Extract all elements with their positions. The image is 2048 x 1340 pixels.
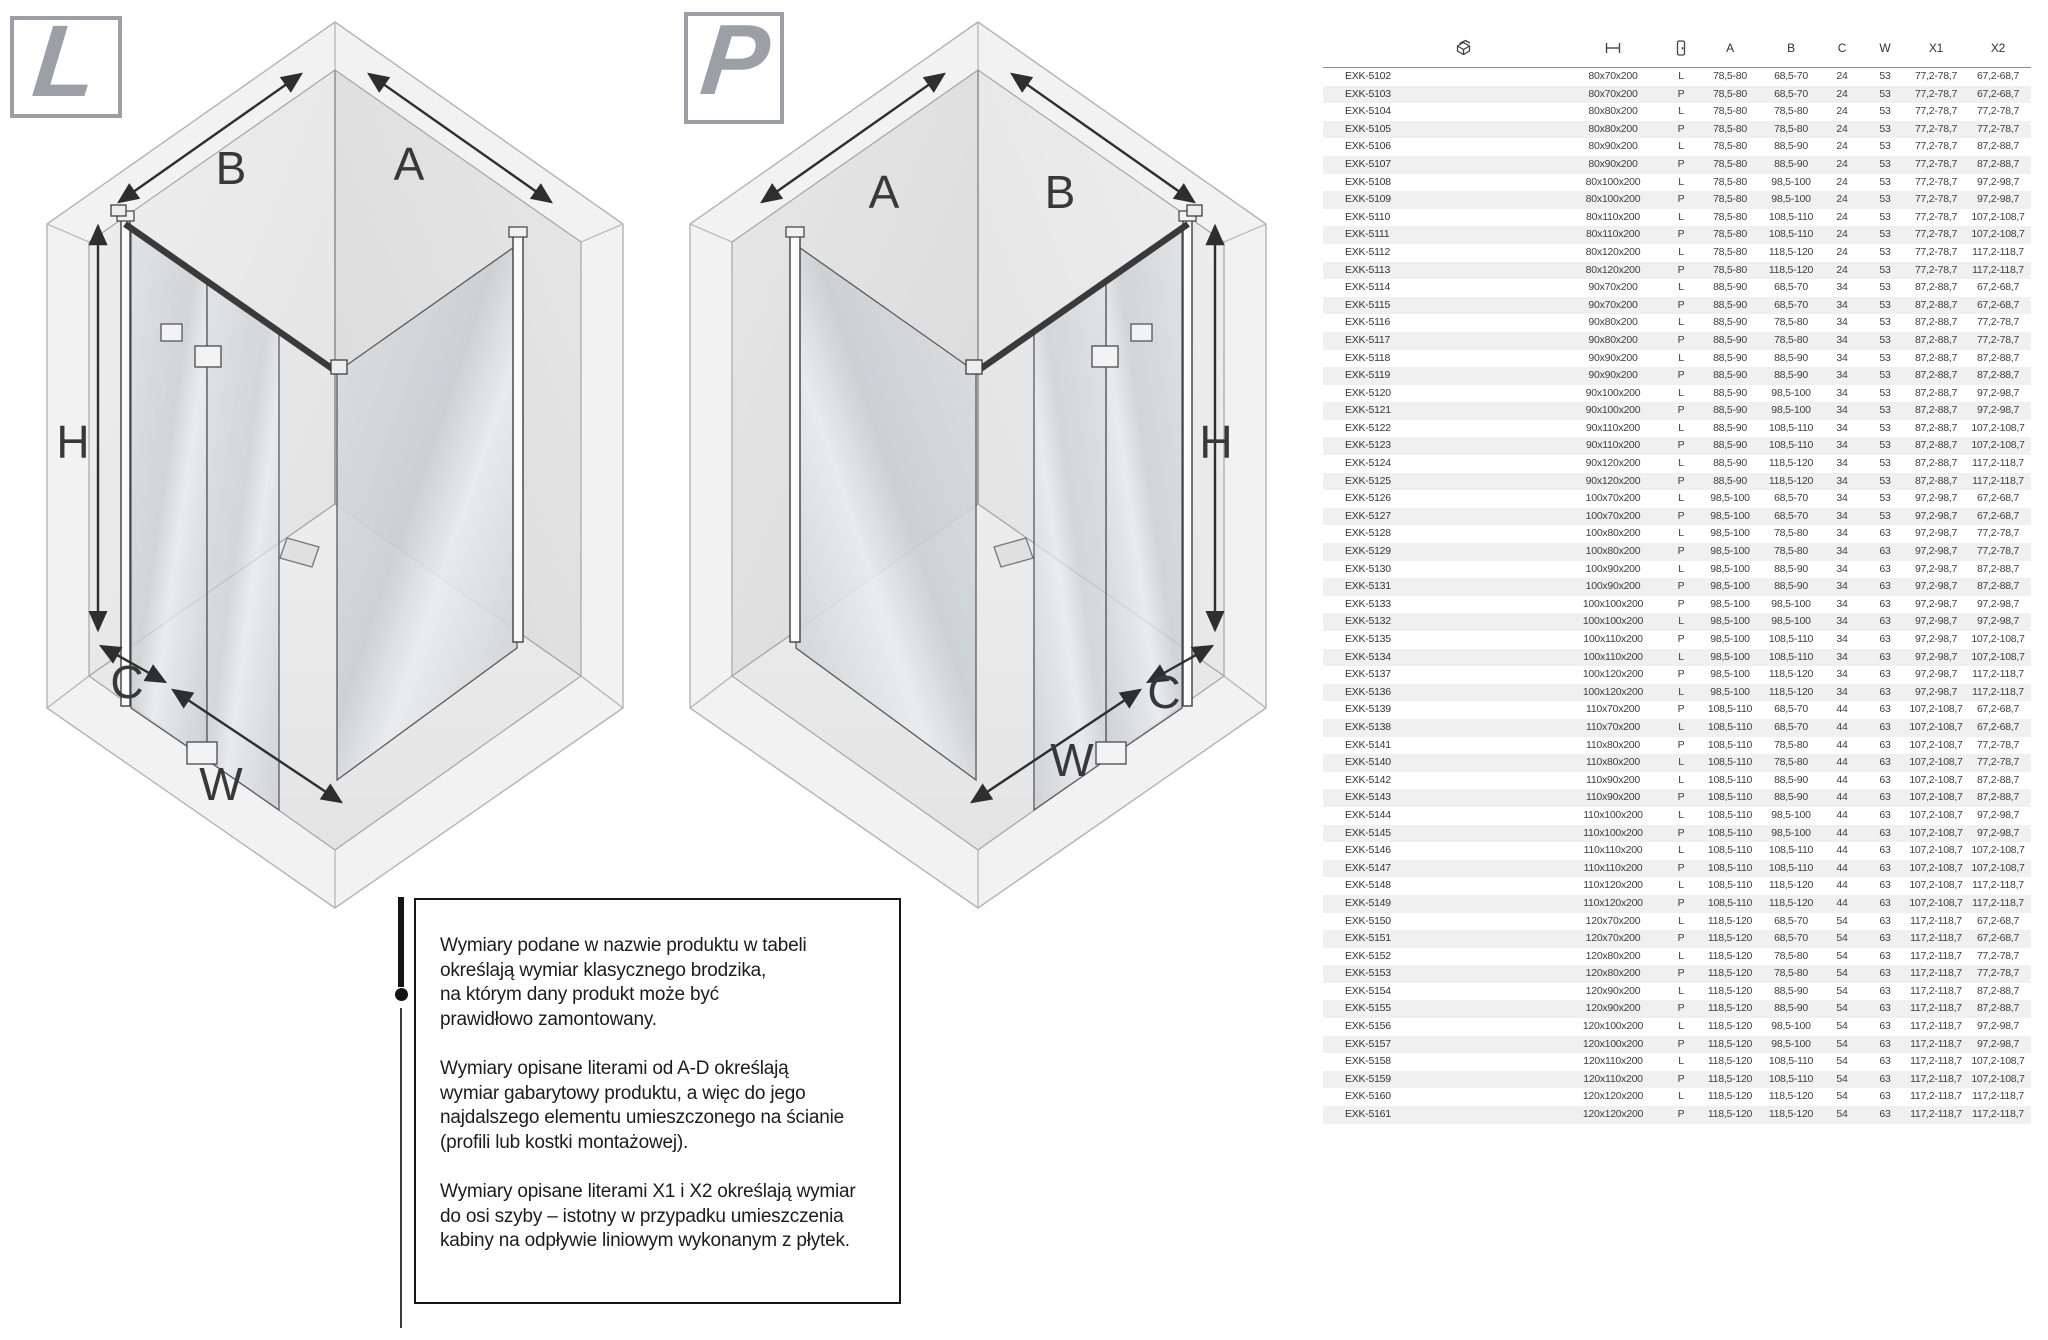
door-side-cell: P <box>1663 86 1699 104</box>
dim-c-cell: 34 <box>1821 297 1863 315</box>
dim-w-cell: 63 <box>1863 561 1907 579</box>
product-code-cell: EXK-5139 <box>1323 701 1563 719</box>
dim-x1-cell: 87,2-88,7 <box>1907 473 1965 491</box>
dim-x2-cell: 107,2-108,7 <box>1965 649 2031 667</box>
col-header-X2: X2 <box>1965 41 2031 55</box>
product-code-cell: EXK-5150 <box>1323 913 1563 931</box>
table-row: EXK-5135 100x110x200 P 98,5-100 108,5-11… <box>1323 631 2031 649</box>
dim-w-cell: 63 <box>1863 1088 1907 1106</box>
table-row: EXK-5160 120x120x200 L 118,5-120 118,5-1… <box>1323 1088 2031 1106</box>
dim-a-cell: 108,5-110 <box>1699 789 1761 807</box>
size-cell: 120x120x200 <box>1563 1088 1663 1106</box>
dim-x1-cell: 77,2-78,7 <box>1907 86 1965 104</box>
dim-x1-cell: 77,2-78,7 <box>1907 68 1965 86</box>
dim-x1-cell: 97,2-98,7 <box>1907 525 1965 543</box>
table-row: EXK-5132 100x100x200 L 98,5-100 98,5-100… <box>1323 613 2031 631</box>
dim-w-cell: 53 <box>1863 490 1907 508</box>
dim-x2-cell: 77,2-78,7 <box>1965 737 2031 755</box>
dim-x2-cell: 117,2-118,7 <box>1965 262 2031 280</box>
product-code-cell: EXK-5114 <box>1323 279 1563 297</box>
note-paragraph-2: Wymiary opisane literami od A-D określaj… <box>440 1057 873 1155</box>
dim-c-cell: 34 <box>1821 314 1863 332</box>
product-code-cell: EXK-5120 <box>1323 385 1563 403</box>
table-row: EXK-5116 90x80x200 L 88,5-90 78,5-80 34 … <box>1323 314 2031 332</box>
size-cell: 90x100x200 <box>1563 402 1663 420</box>
dim-a-cell: 78,5-80 <box>1699 68 1761 86</box>
table-row: EXK-5145 110x100x200 P 108,5-110 98,5-10… <box>1323 825 2031 843</box>
door-side-cell: P <box>1663 825 1699 843</box>
size-cell: 80x80x200 <box>1563 103 1663 121</box>
dim-label-H: H <box>56 416 89 468</box>
dim-x2-cell: 97,2-98,7 <box>1965 1036 2031 1054</box>
table-row: EXK-5117 90x80x200 P 88,5-90 78,5-80 34 … <box>1323 332 2031 350</box>
dim-c-cell: 34 <box>1821 525 1863 543</box>
dim-x1-cell: 87,2-88,7 <box>1907 402 1965 420</box>
dim-b-cell: 98,5-100 <box>1761 1018 1821 1036</box>
dim-x2-cell: 117,2-118,7 <box>1965 895 2031 913</box>
product-code-cell: EXK-5152 <box>1323 948 1563 966</box>
dim-b-cell: 68,5-70 <box>1761 490 1821 508</box>
table-row: EXK-5105 80x80x200 P 78,5-80 78,5-80 24 … <box>1323 121 2031 139</box>
dim-b-cell: 108,5-110 <box>1761 649 1821 667</box>
dim-c-cell: 54 <box>1821 983 1863 1001</box>
door-side-cell: P <box>1663 437 1699 455</box>
dim-x2-cell: 107,2-108,7 <box>1965 1053 2031 1071</box>
dim-x1-cell: 97,2-98,7 <box>1907 631 1965 649</box>
door-side-cell: L <box>1663 314 1699 332</box>
size-cell: 100x70x200 <box>1563 490 1663 508</box>
size-cell: 100x90x200 <box>1563 578 1663 596</box>
product-code-cell: EXK-5124 <box>1323 455 1563 473</box>
dim-x1-cell: 87,2-88,7 <box>1907 314 1965 332</box>
dim-x2-cell: 117,2-118,7 <box>1965 473 2031 491</box>
dim-x2-cell: 107,2-108,7 <box>1965 1071 2031 1089</box>
dim-w-cell: 63 <box>1863 1036 1907 1054</box>
dim-c-cell: 44 <box>1821 719 1863 737</box>
dim-a-cell: 78,5-80 <box>1699 86 1761 104</box>
dim-b-cell: 88,5-90 <box>1761 561 1821 579</box>
dim-x1-cell: 77,2-78,7 <box>1907 244 1965 262</box>
dim-x1-cell: 77,2-78,7 <box>1907 138 1965 156</box>
dim-c-cell: 34 <box>1821 543 1863 561</box>
table-row: EXK-5107 80x90x200 P 78,5-80 88,5-90 24 … <box>1323 156 2031 174</box>
size-cell: 90x110x200 <box>1563 420 1663 438</box>
dim-b-cell: 78,5-80 <box>1761 525 1821 543</box>
dim-b-cell: 88,5-90 <box>1761 1000 1821 1018</box>
dim-w-cell: 53 <box>1863 314 1907 332</box>
product-code-cell: EXK-5125 <box>1323 473 1563 491</box>
dimension-note-box: Wymiary podane w nazwie produktu w tabel… <box>414 898 901 1304</box>
size-cell: 120x90x200 <box>1563 1000 1663 1018</box>
dim-w-cell: 53 <box>1863 103 1907 121</box>
dim-a-cell: 118,5-120 <box>1699 1088 1761 1106</box>
door-side-cell: P <box>1663 156 1699 174</box>
size-cell: 120x80x200 <box>1563 948 1663 966</box>
door-side-cell: L <box>1663 913 1699 931</box>
table-row: EXK-5121 90x100x200 P 88,5-90 98,5-100 3… <box>1323 402 2031 420</box>
dim-x2-cell: 87,2-88,7 <box>1965 367 2031 385</box>
dim-x1-cell: 87,2-88,7 <box>1907 367 1965 385</box>
size-cell: 80x110x200 <box>1563 209 1663 227</box>
table-row: EXK-5133 100x100x200 P 98,5-100 98,5-100… <box>1323 596 2031 614</box>
dim-x1-cell: 107,2-108,7 <box>1907 754 1965 772</box>
product-code-cell: EXK-5153 <box>1323 965 1563 983</box>
size-cell: 110x80x200 <box>1563 754 1663 772</box>
dim-a-cell: 98,5-100 <box>1699 525 1761 543</box>
product-code-cell: EXK-5130 <box>1323 561 1563 579</box>
dim-b-cell: 98,5-100 <box>1761 596 1821 614</box>
door-side-cell: L <box>1663 68 1699 86</box>
dim-w-cell: 63 <box>1863 1106 1907 1124</box>
dim-x2-cell: 77,2-78,7 <box>1965 314 2031 332</box>
table-row: EXK-5113 80x120x200 P 78,5-80 118,5-120 … <box>1323 262 2031 280</box>
dim-label-A: A <box>394 138 425 190</box>
door-side-cell: P <box>1663 701 1699 719</box>
dim-a-cell: 78,5-80 <box>1699 209 1761 227</box>
product-code-cell: EXK-5119 <box>1323 367 1563 385</box>
dim-c-cell: 34 <box>1821 332 1863 350</box>
product-code-cell: EXK-5106 <box>1323 138 1563 156</box>
dim-a-cell: 108,5-110 <box>1699 772 1761 790</box>
table-row: EXK-5154 120x90x200 L 118,5-120 88,5-90 … <box>1323 983 2031 1001</box>
dim-x2-cell: 77,2-78,7 <box>1965 543 2031 561</box>
dim-b-cell: 108,5-110 <box>1761 209 1821 227</box>
dim-b-cell: 98,5-100 <box>1761 825 1821 843</box>
size-cell: 90x100x200 <box>1563 385 1663 403</box>
dim-b-cell: 118,5-120 <box>1761 666 1821 684</box>
dim-w-cell: 63 <box>1863 1053 1907 1071</box>
table-row: EXK-5144 110x100x200 L 108,5-110 98,5-10… <box>1323 807 2031 825</box>
product-code-cell: EXK-5103 <box>1323 86 1563 104</box>
dim-w-cell: 63 <box>1863 737 1907 755</box>
dim-x1-cell: 117,2-118,7 <box>1907 1071 1965 1089</box>
dim-a-cell: 118,5-120 <box>1699 1053 1761 1071</box>
dim-x1-cell: 77,2-78,7 <box>1907 121 1965 139</box>
dim-b-cell: 78,5-80 <box>1761 965 1821 983</box>
badge-letter-L: L <box>29 10 102 112</box>
size-cell: 110x110x200 <box>1563 860 1663 878</box>
product-code-cell: EXK-5109 <box>1323 191 1563 209</box>
dim-w-cell: 63 <box>1863 613 1907 631</box>
dim-b-cell: 88,5-90 <box>1761 789 1821 807</box>
dim-w-cell: 63 <box>1863 1000 1907 1018</box>
dim-c-cell: 34 <box>1821 631 1863 649</box>
product-code-cell: EXK-5137 <box>1323 666 1563 684</box>
dim-a-cell: 108,5-110 <box>1699 825 1761 843</box>
dim-label-C: C <box>1147 666 1180 718</box>
door-side-cell: P <box>1663 596 1699 614</box>
dim-x2-cell: 107,2-108,7 <box>1965 631 2031 649</box>
dim-c-cell: 24 <box>1821 244 1863 262</box>
door-side-cell: P <box>1663 473 1699 491</box>
dim-x1-cell: 87,2-88,7 <box>1907 332 1965 350</box>
dim-c-cell: 24 <box>1821 174 1863 192</box>
note-paragraph-3: Wymiary opisane literami X1 i X2 określa… <box>440 1180 873 1254</box>
dim-c-cell: 54 <box>1821 1018 1863 1036</box>
size-cell: 90x110x200 <box>1563 437 1663 455</box>
dim-a-cell: 108,5-110 <box>1699 701 1761 719</box>
product-code-cell: EXK-5131 <box>1323 578 1563 596</box>
dim-x1-cell: 97,2-98,7 <box>1907 596 1965 614</box>
dim-w-cell: 53 <box>1863 385 1907 403</box>
dim-a-cell: 118,5-120 <box>1699 965 1761 983</box>
dim-b-cell: 98,5-100 <box>1761 385 1821 403</box>
dim-label-W: W <box>199 758 243 810</box>
dim-x2-cell: 107,2-108,7 <box>1965 226 2031 244</box>
size-cell: 80x100x200 <box>1563 191 1663 209</box>
dim-c-cell: 34 <box>1821 596 1863 614</box>
dim-a-cell: 88,5-90 <box>1699 437 1761 455</box>
product-code-cell: EXK-5154 <box>1323 983 1563 1001</box>
dim-x2-cell: 87,2-88,7 <box>1965 1000 2031 1018</box>
dim-c-cell: 54 <box>1821 1071 1863 1089</box>
dim-x2-cell: 77,2-78,7 <box>1965 121 2031 139</box>
dim-x2-cell: 117,2-118,7 <box>1965 684 2031 702</box>
dim-a-cell: 118,5-120 <box>1699 1071 1761 1089</box>
size-cell: 110x70x200 <box>1563 701 1663 719</box>
dim-a-cell: 108,5-110 <box>1699 877 1761 895</box>
dim-x1-cell: 87,2-88,7 <box>1907 297 1965 315</box>
dim-x1-cell: 117,2-118,7 <box>1907 1106 1965 1124</box>
dim-x1-cell: 107,2-108,7 <box>1907 737 1965 755</box>
dim-label-B: B <box>1045 166 1076 218</box>
dim-x2-cell: 67,2-68,7 <box>1965 701 2031 719</box>
table-row: EXK-5110 80x110x200 L 78,5-80 108,5-110 … <box>1323 209 2031 227</box>
door-side-cell: P <box>1663 402 1699 420</box>
dim-c-cell: 44 <box>1821 772 1863 790</box>
dim-c-cell: 54 <box>1821 1088 1863 1106</box>
dim-a-cell: 108,5-110 <box>1699 842 1761 860</box>
dim-c-cell: 34 <box>1821 437 1863 455</box>
dim-w-cell: 63 <box>1863 983 1907 1001</box>
product-code-cell: EXK-5110 <box>1323 209 1563 227</box>
dim-b-cell: 108,5-110 <box>1761 631 1821 649</box>
dim-x2-cell: 107,2-108,7 <box>1965 437 2031 455</box>
dim-x1-cell: 117,2-118,7 <box>1907 983 1965 1001</box>
size-cell: 80x70x200 <box>1563 68 1663 86</box>
door-side-cell: L <box>1663 420 1699 438</box>
table-row: EXK-5150 120x70x200 L 118,5-120 68,5-70 … <box>1323 913 2031 931</box>
dim-w-cell: 63 <box>1863 842 1907 860</box>
product-code-cell: EXK-5115 <box>1323 297 1563 315</box>
dim-c-cell: 24 <box>1821 226 1863 244</box>
table-row: EXK-5127 100x70x200 P 98,5-100 68,5-70 3… <box>1323 508 2031 526</box>
dim-x2-cell: 107,2-108,7 <box>1965 860 2031 878</box>
dim-w-cell: 63 <box>1863 754 1907 772</box>
dim-x1-cell: 97,2-98,7 <box>1907 543 1965 561</box>
dim-c-cell: 54 <box>1821 1106 1863 1124</box>
size-cell: 120x80x200 <box>1563 965 1663 983</box>
product-code-cell: EXK-5160 <box>1323 1088 1563 1106</box>
dim-a-cell: 98,5-100 <box>1699 684 1761 702</box>
table-row: EXK-5155 120x90x200 P 118,5-120 88,5-90 … <box>1323 1000 2031 1018</box>
size-cell: 90x80x200 <box>1563 314 1663 332</box>
dim-b-cell: 78,5-80 <box>1761 332 1821 350</box>
dim-c-cell: 34 <box>1821 613 1863 631</box>
dim-c-cell: 24 <box>1821 121 1863 139</box>
dim-b-cell: 108,5-110 <box>1761 842 1821 860</box>
table-row: EXK-5103 80x70x200 P 78,5-80 68,5-70 24 … <box>1323 86 2031 104</box>
dim-w-cell: 53 <box>1863 174 1907 192</box>
dim-a-cell: 118,5-120 <box>1699 983 1761 1001</box>
dim-w-cell: 53 <box>1863 244 1907 262</box>
size-cell: 100x110x200 <box>1563 649 1663 667</box>
dim-b-cell: 98,5-100 <box>1761 613 1821 631</box>
dim-c-cell: 24 <box>1821 68 1863 86</box>
door-side-cell: P <box>1663 930 1699 948</box>
dim-label-C: C <box>110 656 143 708</box>
dim-x1-cell: 117,2-118,7 <box>1907 1036 1965 1054</box>
product-code-cell: EXK-5145 <box>1323 825 1563 843</box>
dim-x1-cell: 107,2-108,7 <box>1907 825 1965 843</box>
dim-w-cell: 53 <box>1863 402 1907 420</box>
dim-a-cell: 78,5-80 <box>1699 138 1761 156</box>
dim-x2-cell: 87,2-88,7 <box>1965 138 2031 156</box>
door-side-cell: P <box>1663 1071 1699 1089</box>
dim-w-cell: 63 <box>1863 596 1907 614</box>
dim-a-cell: 88,5-90 <box>1699 332 1761 350</box>
dim-b-cell: 98,5-100 <box>1761 402 1821 420</box>
product-code-cell: EXK-5158 <box>1323 1053 1563 1071</box>
product-code-cell: EXK-5159 <box>1323 1071 1563 1089</box>
door-side-cell: L <box>1663 877 1699 895</box>
product-code-cell: EXK-5118 <box>1323 350 1563 368</box>
dim-w-cell: 53 <box>1863 121 1907 139</box>
shower-diagram-left-L: B A H C W <box>25 8 645 913</box>
dim-b-cell: 118,5-120 <box>1761 684 1821 702</box>
dim-b-cell: 88,5-90 <box>1761 156 1821 174</box>
door-side-cell: P <box>1663 860 1699 878</box>
dim-c-cell: 54 <box>1821 948 1863 966</box>
door-side-cell: L <box>1663 1053 1699 1071</box>
dim-b-cell: 68,5-70 <box>1761 701 1821 719</box>
size-cell: 80x70x200 <box>1563 86 1663 104</box>
dim-b-cell: 78,5-80 <box>1761 948 1821 966</box>
dim-w-cell: 53 <box>1863 68 1907 86</box>
dim-a-cell: 88,5-90 <box>1699 385 1761 403</box>
dim-w-cell: 53 <box>1863 279 1907 297</box>
dim-b-cell: 68,5-70 <box>1761 930 1821 948</box>
dim-x2-cell: 117,2-118,7 <box>1965 666 2031 684</box>
dim-x1-cell: 107,2-108,7 <box>1907 807 1965 825</box>
dim-x1-cell: 97,2-98,7 <box>1907 508 1965 526</box>
door-side-cell: P <box>1663 297 1699 315</box>
dim-b-cell: 78,5-80 <box>1761 103 1821 121</box>
size-cell: 90x90x200 <box>1563 367 1663 385</box>
door-side-cell: P <box>1663 226 1699 244</box>
table-row: EXK-5147 110x110x200 P 108,5-110 108,5-1… <box>1323 860 2031 878</box>
table-row: EXK-5123 90x110x200 P 88,5-90 108,5-110 … <box>1323 437 2031 455</box>
dim-x1-cell: 117,2-118,7 <box>1907 1000 1965 1018</box>
dim-c-cell: 44 <box>1821 825 1863 843</box>
dim-w-cell: 63 <box>1863 631 1907 649</box>
dim-x1-cell: 87,2-88,7 <box>1907 350 1965 368</box>
dim-b-cell: 108,5-110 <box>1761 1071 1821 1089</box>
dim-c-cell: 44 <box>1821 895 1863 913</box>
product-code-cell: EXK-5141 <box>1323 737 1563 755</box>
dim-b-cell: 88,5-90 <box>1761 350 1821 368</box>
dim-c-cell: 24 <box>1821 103 1863 121</box>
dim-x1-cell: 97,2-98,7 <box>1907 578 1965 596</box>
col-header-C: C <box>1821 41 1863 55</box>
dim-a-cell: 118,5-120 <box>1699 913 1761 931</box>
dim-c-cell: 54 <box>1821 1053 1863 1071</box>
size-cell: 100x120x200 <box>1563 684 1663 702</box>
dim-w-cell: 53 <box>1863 473 1907 491</box>
product-code-cell: EXK-5113 <box>1323 262 1563 280</box>
dim-c-cell: 34 <box>1821 455 1863 473</box>
note-accent-bar <box>398 897 404 987</box>
table-row: EXK-5142 110x90x200 L 108,5-110 88,5-90 … <box>1323 772 2031 790</box>
dim-a-cell: 88,5-90 <box>1699 314 1761 332</box>
dim-x1-cell: 87,2-88,7 <box>1907 437 1965 455</box>
dim-x1-cell: 107,2-108,7 <box>1907 860 1965 878</box>
table-row: EXK-5152 120x80x200 L 118,5-120 78,5-80 … <box>1323 948 2031 966</box>
dim-x1-cell: 87,2-88,7 <box>1907 455 1965 473</box>
dim-a-cell: 98,5-100 <box>1699 613 1761 631</box>
door-side-cell: P <box>1663 631 1699 649</box>
dim-b-cell: 108,5-110 <box>1761 437 1821 455</box>
col-header-X1: X1 <box>1907 41 1965 55</box>
dim-x2-cell: 87,2-88,7 <box>1965 789 2031 807</box>
door-side-cell: P <box>1663 121 1699 139</box>
dim-w-cell: 53 <box>1863 156 1907 174</box>
table-row: EXK-5136 100x120x200 L 98,5-100 118,5-12… <box>1323 684 2031 702</box>
dim-x1-cell: 97,2-98,7 <box>1907 666 1965 684</box>
dim-c-cell: 34 <box>1821 666 1863 684</box>
dim-x2-cell: 87,2-88,7 <box>1965 578 2031 596</box>
dim-x2-cell: 117,2-118,7 <box>1965 877 2031 895</box>
dim-b-cell: 108,5-110 <box>1761 860 1821 878</box>
product-icon <box>1343 38 1583 57</box>
table-row: EXK-5157 120x100x200 P 118,5-120 98,5-10… <box>1323 1036 2031 1054</box>
dim-c-cell: 54 <box>1821 1036 1863 1054</box>
dim-x2-cell: 97,2-98,7 <box>1965 385 2031 403</box>
col-header-W: W <box>1863 41 1907 55</box>
size-cell: 100x110x200 <box>1563 631 1663 649</box>
dim-x2-cell: 67,2-68,7 <box>1965 297 2031 315</box>
dim-a-cell: 118,5-120 <box>1699 1018 1761 1036</box>
dim-x1-cell: 77,2-78,7 <box>1907 209 1965 227</box>
dim-w-cell: 53 <box>1863 262 1907 280</box>
table-row: EXK-5114 90x70x200 L 88,5-90 68,5-70 34 … <box>1323 279 2031 297</box>
dim-x1-cell: 97,2-98,7 <box>1907 684 1965 702</box>
dim-a-cell: 78,5-80 <box>1699 191 1761 209</box>
table-row: EXK-5115 90x70x200 P 88,5-90 68,5-70 34 … <box>1323 297 2031 315</box>
dim-a-cell: 108,5-110 <box>1699 754 1761 772</box>
dim-x2-cell: 97,2-98,7 <box>1965 825 2031 843</box>
dim-b-cell: 68,5-70 <box>1761 86 1821 104</box>
dim-b-cell: 88,5-90 <box>1761 983 1821 1001</box>
dim-w-cell: 63 <box>1863 684 1907 702</box>
dim-b-cell: 68,5-70 <box>1761 913 1821 931</box>
dim-x1-cell: 117,2-118,7 <box>1907 948 1965 966</box>
dim-a-cell: 78,5-80 <box>1699 226 1761 244</box>
dim-a-cell: 108,5-110 <box>1699 737 1761 755</box>
table-row: EXK-5158 120x110x200 L 118,5-120 108,5-1… <box>1323 1053 2031 1071</box>
dim-b-cell: 68,5-70 <box>1761 508 1821 526</box>
dim-x2-cell: 77,2-78,7 <box>1965 754 2031 772</box>
product-code-cell: EXK-5156 <box>1323 1018 1563 1036</box>
size-cell: 90x80x200 <box>1563 332 1663 350</box>
dim-c-cell: 44 <box>1821 754 1863 772</box>
dim-w-cell: 53 <box>1863 367 1907 385</box>
dim-a-cell: 88,5-90 <box>1699 473 1761 491</box>
door-side-cell: L <box>1663 103 1699 121</box>
dim-a-cell: 118,5-120 <box>1699 1036 1761 1054</box>
size-cell: 110x90x200 <box>1563 789 1663 807</box>
dim-a-cell: 108,5-110 <box>1699 719 1761 737</box>
